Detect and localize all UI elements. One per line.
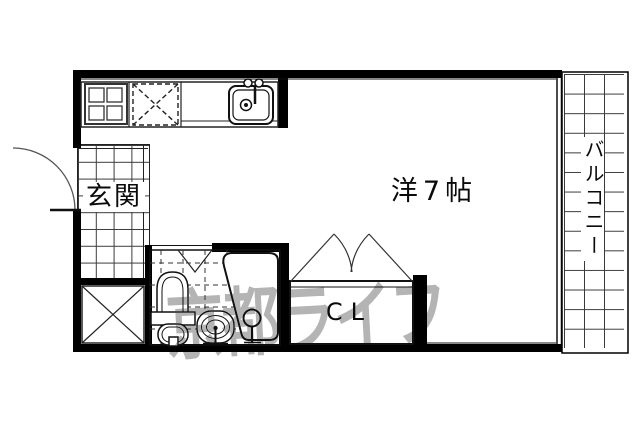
wall-left-upper: [73, 70, 81, 148]
balcony-label: バルコニー: [581, 137, 604, 261]
entry-door-arc-icon: [13, 148, 81, 210]
floor-plan: 玄関 洋7帖 CL バルコニー 京都ライフ: [0, 0, 640, 427]
kitchen-sink-icon: [229, 79, 273, 124]
main-room-label: 洋7帖: [374, 176, 494, 208]
shoe-storage-x-icon: [82, 286, 144, 343]
entrance-label: 玄関: [83, 182, 145, 212]
stove-icon: [85, 84, 127, 124]
wall-entrance-divider: [73, 278, 148, 285]
wall-top: [73, 70, 562, 78]
window-sliding-icon: [557, 78, 562, 344]
watermark-text: 京都ライフ: [163, 251, 448, 375]
refrigerator-space-icon: [133, 84, 178, 125]
